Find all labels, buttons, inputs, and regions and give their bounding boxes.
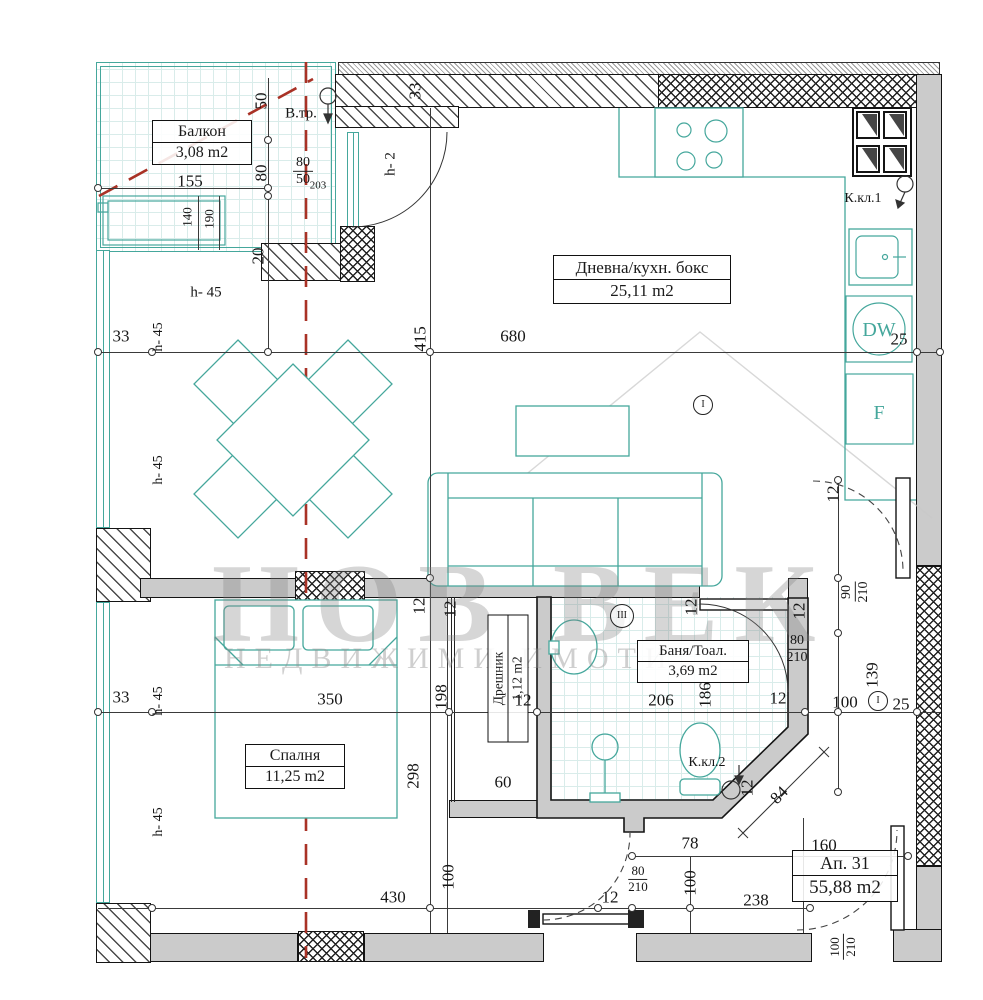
dim-tick-marker	[264, 192, 272, 200]
dimension-label: 25	[891, 331, 908, 348]
dimension-label: 100	[832, 694, 858, 711]
dimension-label: 12	[791, 603, 808, 620]
dimension-fraction: 80210	[628, 864, 648, 894]
entrance-door-arc	[543, 833, 630, 920]
dim-line	[268, 78, 269, 352]
dim-line	[98, 908, 812, 909]
dimension-label: 12	[770, 690, 787, 707]
dimension-label: 238	[743, 892, 769, 909]
entrance-door-jamb	[628, 910, 644, 928]
dimension-label: 139	[864, 662, 881, 688]
room-area: 3,08 m2	[153, 143, 251, 164]
dimension-label: 350	[317, 691, 343, 708]
dimension-label: 155	[177, 173, 203, 190]
dimension-label: 680	[500, 328, 526, 345]
dimension-fraction: 100210	[828, 934, 858, 960]
dim-tick-marker	[686, 904, 694, 912]
dim-tick-marker	[94, 708, 102, 716]
room-name: Дрешник	[489, 616, 509, 742]
dim-tick-marker	[264, 348, 272, 356]
fridge-label: F	[873, 402, 884, 424]
dim-tick-marker	[264, 184, 272, 192]
dimension-label: h- 45	[190, 286, 221, 301]
apartment-label: Ап. 31 55,88 m2	[792, 850, 898, 902]
room-area: 25,11 m2	[554, 280, 730, 303]
dimension-label: h- 45	[152, 686, 166, 715]
room-label-living: Дневна/кухн. бокс 25,11 m2	[553, 255, 731, 304]
dimension-label: 190	[203, 209, 216, 229]
dimension-label: 60	[495, 774, 512, 791]
dim-line	[430, 108, 431, 933]
dim-tick-marker	[936, 348, 944, 356]
dim-tick-marker	[913, 708, 921, 716]
dimension-label: 12	[411, 598, 428, 615]
dimension-label: 12	[825, 486, 842, 503]
dim-tick-marker	[628, 904, 636, 912]
dimension-fraction: 80210	[787, 633, 808, 665]
dim-tick-marker	[834, 788, 842, 796]
room-area: 1,12 m2	[509, 616, 528, 742]
dimension-label: 140	[181, 207, 194, 227]
dim-tick-marker	[426, 904, 434, 912]
watermark-subtitle: НЕДВИЖИМИ ИМОТИ	[224, 642, 676, 676]
axis-marker: III	[610, 604, 634, 628]
balcony-door-arc	[352, 132, 447, 227]
dim-tick-marker	[94, 348, 102, 356]
dim-tick-marker	[834, 476, 842, 484]
dimension-label: 430	[380, 889, 406, 906]
dimension-label: 12	[739, 780, 756, 797]
dim-tick-marker	[913, 348, 921, 356]
floor-plan: DW F	[0, 0, 983, 1000]
dimension-label: 80	[253, 165, 270, 182]
dimension-label: К.кл.2	[688, 756, 725, 770]
riser-icon-vtr	[320, 88, 336, 123]
dimension-label: 186	[697, 682, 714, 708]
dimension-label: 415	[412, 326, 429, 352]
dim-tick-marker	[834, 629, 842, 637]
dimension-label: 33	[113, 328, 130, 345]
dim-line	[96, 352, 940, 353]
dim-tick-marker	[801, 708, 809, 716]
dimension-label: h- 45	[152, 322, 166, 351]
dimension-label: 20	[250, 248, 267, 265]
apartment-area: 55,88 m2	[793, 876, 897, 901]
dimension-label: 33	[113, 689, 130, 706]
room-area: 3,69 m2	[638, 662, 748, 682]
dim-line	[219, 196, 220, 250]
dimension-label: 12	[515, 692, 532, 709]
dim-tick-marker	[264, 136, 272, 144]
dimension-label: К.кл.1	[844, 192, 881, 206]
axis-marker: I	[868, 691, 888, 711]
dimension-label: 12	[683, 599, 700, 616]
dimension-label: 12	[442, 601, 459, 618]
dim-tick-marker	[904, 852, 912, 860]
dimension-label: 33	[407, 83, 424, 100]
dim-line	[198, 196, 199, 250]
dimension-label: h- 45	[152, 807, 166, 836]
dim-tick-marker	[148, 904, 156, 912]
dimension-fraction: 90210	[839, 582, 871, 603]
room-label-bedroom: Спалня 11,25 m2	[245, 744, 345, 789]
dimension-label: 298	[405, 763, 422, 789]
vent-shaft-icon	[853, 108, 911, 176]
dimension-label: h- 45	[152, 455, 166, 484]
dimension-label: 100	[682, 870, 699, 896]
room-label-bath: Баня/Тоал. 3,69 m2	[637, 640, 749, 683]
dim-tick-marker	[628, 852, 636, 860]
dimension-label: 206	[648, 692, 674, 709]
dimension-label: h- 2	[384, 152, 399, 176]
riser-icon-kkl1	[896, 176, 913, 208]
dimension-label: В.тр.	[285, 107, 317, 122]
coffee-table	[516, 406, 629, 456]
dimension-label: 198	[433, 684, 450, 710]
dimension-label: 160	[811, 837, 837, 854]
axis-marker: I	[693, 395, 713, 415]
dimension-label: 25	[893, 696, 910, 713]
dim-tick-marker	[806, 904, 814, 912]
dimension-label: 203	[310, 181, 327, 192]
shower-mixer-icon	[590, 734, 620, 802]
entrance-door-jamb	[528, 910, 540, 928]
room-name: Дневна/кухн. бокс	[554, 256, 730, 280]
room-name: Балкон	[153, 121, 251, 143]
dimension-label: 50	[253, 93, 270, 110]
room-name: Баня/Тоал.	[638, 641, 748, 662]
apartment-number: Ап. 31	[793, 851, 897, 876]
dim-tick-marker	[94, 184, 102, 192]
room-area: 11,25 m2	[246, 767, 344, 788]
room-label-balcony: Балкон 3,08 m2	[152, 120, 252, 165]
dimension-label: 100	[440, 864, 457, 890]
dimension-label: 12	[602, 889, 619, 906]
room-label-closet: Дрешник 1,12 m2	[488, 615, 529, 743]
dimension-label: 78	[682, 835, 699, 852]
room-name: Спалня	[246, 745, 344, 767]
stove	[655, 108, 743, 177]
dining-set	[194, 340, 392, 538]
dim-tick-marker	[533, 708, 541, 716]
